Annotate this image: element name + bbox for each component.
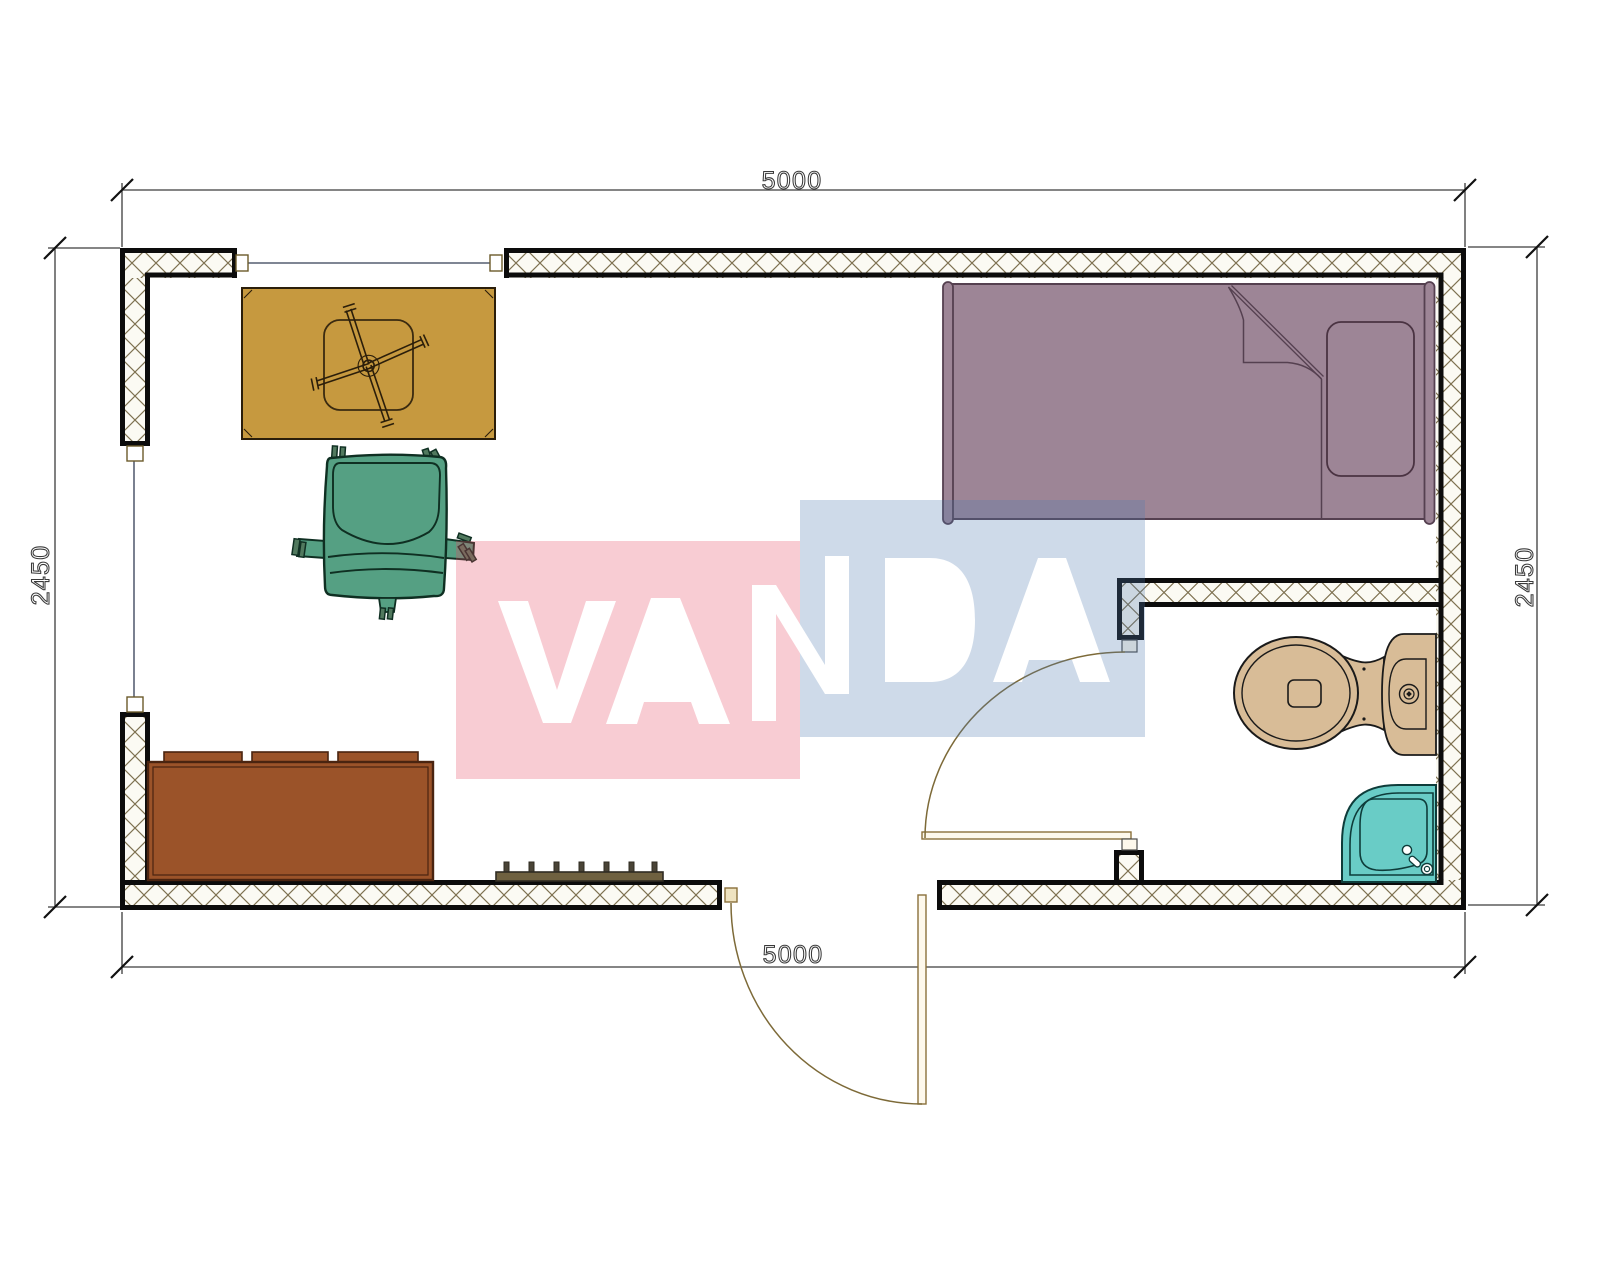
svg-text:5000: 5000 [762,167,823,195]
svg-text:5000: 5000 [763,941,824,969]
svg-text:2450: 2450 [1511,547,1539,608]
svg-text:2450: 2450 [27,545,55,606]
